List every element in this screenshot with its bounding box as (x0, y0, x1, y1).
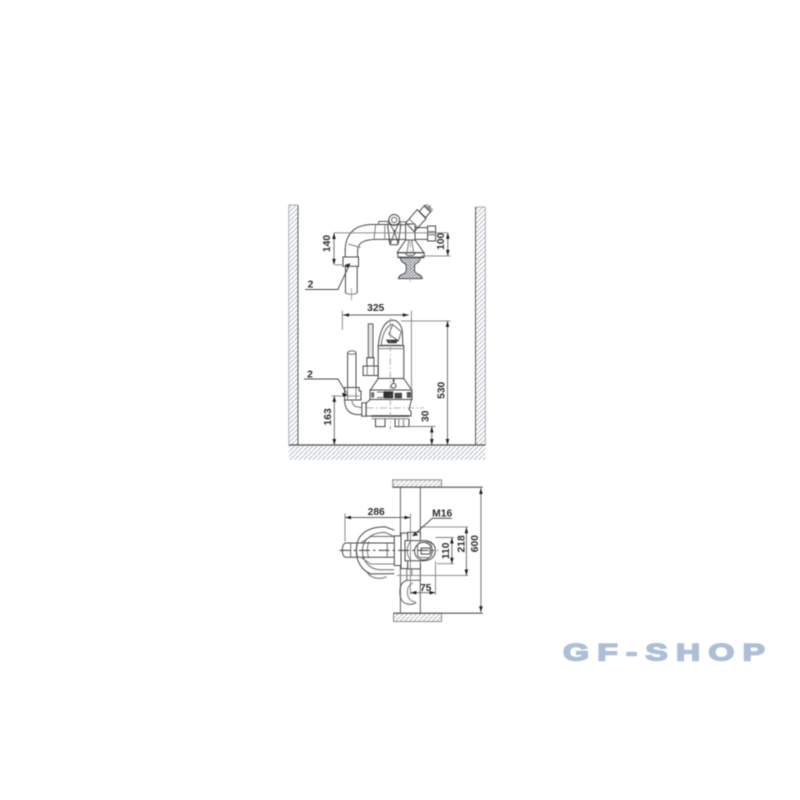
svg-text:2: 2 (307, 370, 313, 381)
svg-text:75: 75 (420, 583, 432, 594)
svg-text:100: 100 (436, 232, 447, 249)
svg-text:286: 286 (368, 507, 385, 518)
svg-text:325: 325 (367, 303, 384, 314)
svg-text:163: 163 (323, 408, 334, 425)
svg-text:140: 140 (322, 235, 333, 252)
svg-text:530: 530 (436, 381, 447, 398)
svg-text:110: 110 (441, 542, 452, 559)
svg-text:GF-SHOP: GF-SHOP (563, 640, 773, 666)
svg-text:600: 600 (470, 535, 481, 552)
svg-text:218: 218 (456, 535, 467, 552)
svg-text:M16: M16 (432, 509, 452, 520)
svg-text:2: 2 (308, 279, 314, 290)
svg-text:30: 30 (421, 410, 432, 422)
